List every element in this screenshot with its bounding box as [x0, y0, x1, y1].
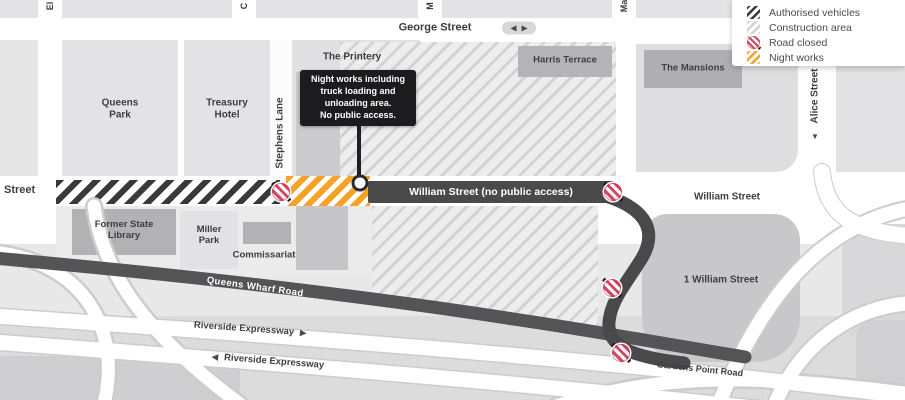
construction-area-swatch-icon: [747, 21, 760, 34]
road-closed-icon: [272, 183, 290, 201]
legend-item-authorised-vehicles: Authorised vehicles: [747, 5, 905, 20]
legend-item-road-closed: Road closed: [747, 35, 905, 50]
street-label-cut: M: [425, 2, 435, 10]
one-way-down-arrow-icon: [811, 133, 819, 141]
alice-street-label: Alice Street: [809, 68, 821, 123]
arrow-left-icon: [212, 354, 219, 362]
former-state-library-label: Former State Library: [84, 220, 164, 242]
mansions-label: The Mansions: [661, 64, 724, 75]
callout-line: unloading area.: [325, 98, 392, 110]
william-street-closed-label: William Street (no public access): [409, 186, 573, 198]
road-closed-icon: [603, 279, 621, 297]
legend-label: Authorised vehicles: [769, 7, 860, 19]
miller-park-label: Miller Park: [189, 225, 229, 247]
callout-line: No public access.: [320, 110, 396, 122]
william-street-east-label: William Street: [694, 191, 760, 203]
two-way-arrow-icon: [502, 22, 536, 35]
road-closed-icon: [612, 344, 630, 362]
callout-pointer-line: [357, 124, 361, 178]
callout-line: Night works including: [311, 74, 405, 86]
commissariat-label: Commissariat: [233, 251, 296, 262]
one-william-street-label: 1 William Street: [684, 274, 758, 286]
street-label-cut: Ma: [619, 0, 629, 12]
legend-label: Night works: [769, 52, 824, 64]
treasury-hotel-label: Treasury Hotel: [196, 98, 258, 121]
arrow-right-icon: [300, 329, 307, 337]
harris-terrace-label: Harris Terrace: [533, 56, 597, 67]
night-works-swatch-icon: [747, 51, 760, 64]
legend-label: Construction area: [769, 22, 852, 34]
road-closed-icon: [604, 183, 622, 201]
road-closure-map: El C M Ma George Street: [0, 0, 905, 400]
west-street-cut-label: Street: [4, 184, 35, 197]
arrow-left-icon: [510, 24, 516, 32]
printery-label: The Printery: [323, 51, 381, 63]
night-works-callout: Night works including truck loading and …: [300, 70, 416, 126]
street-label-cut: C: [239, 3, 249, 10]
callout-pointer-dot: [352, 175, 369, 192]
authorised-vehicles-swatch-icon: [747, 6, 760, 19]
stephens-lane-label: Stephens Lane: [274, 97, 286, 168]
road-closed-swatch-icon: [747, 36, 760, 49]
legend-item-night-works: Night works: [747, 50, 905, 65]
callout-line: truck loading and: [320, 86, 395, 98]
queens-park-label: Queens Park: [90, 98, 150, 121]
legend-item-construction-area: Construction area: [747, 20, 905, 35]
street-label-cut: El: [45, 2, 55, 11]
arrow-right-icon: [522, 24, 528, 32]
george-street-label: George Street: [399, 22, 472, 35]
legend-label: Road closed: [769, 37, 827, 49]
map-legend: Authorised vehicles Construction area Ro…: [732, 0, 905, 66]
